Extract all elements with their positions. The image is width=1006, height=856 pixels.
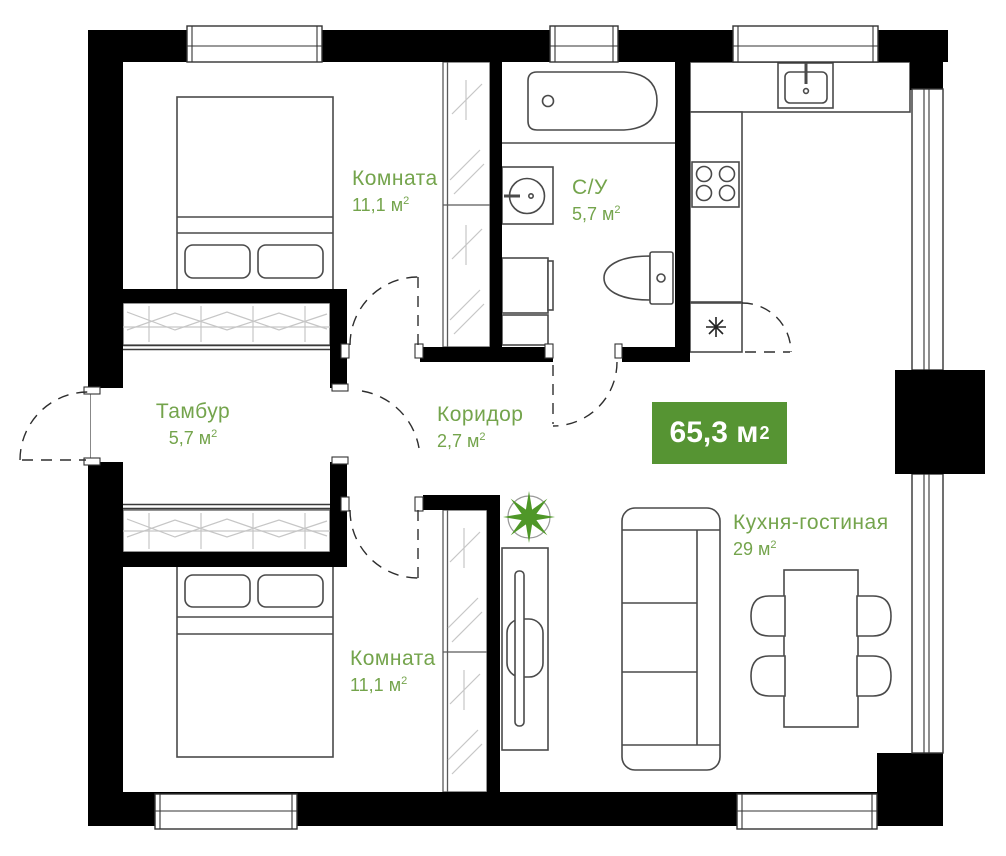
hall-closet-bottom bbox=[123, 505, 330, 553]
room-label-koridor: Коридор 2,7 м2 bbox=[437, 404, 523, 450]
wall-right-bottom-corner bbox=[877, 753, 943, 793]
snowflake-icon bbox=[706, 317, 726, 337]
plant-icon bbox=[503, 491, 555, 543]
wardrobe-top-room bbox=[443, 62, 490, 347]
dining-table bbox=[784, 570, 858, 727]
room-label-kitchen: Кухня-гостиная 29 м2 bbox=[733, 512, 889, 558]
room-label-bottom: Комната 11,1 м2 bbox=[350, 648, 436, 694]
chair bbox=[751, 596, 785, 636]
stove bbox=[692, 162, 739, 207]
door-swing-kitchen bbox=[742, 303, 791, 352]
washing-machine bbox=[502, 258, 553, 345]
wall-closet-right-top bbox=[330, 289, 347, 388]
floor-plan: Комната 11,1 м2 Тамбур 5,7 м2 Коридор 2,… bbox=[0, 0, 1006, 856]
toilet bbox=[604, 252, 673, 304]
room-label-tambur: Тамбур 5,7 м2 bbox=[155, 401, 231, 447]
wall-right-top-corner bbox=[910, 62, 943, 90]
wall-closet2-bottom bbox=[123, 552, 330, 567]
door-swing-hall bbox=[362, 391, 419, 448]
wall-room1-bottom bbox=[123, 289, 347, 303]
entrance-opening bbox=[84, 387, 123, 465]
chair bbox=[857, 596, 891, 636]
window bbox=[733, 26, 878, 62]
bed-bottom-room bbox=[177, 566, 333, 757]
tv-stand bbox=[502, 548, 548, 750]
chair bbox=[857, 656, 891, 696]
wall-bathroom-right bbox=[675, 62, 690, 362]
room-label-top: Комната 11,1 м2 bbox=[352, 168, 438, 214]
window bbox=[912, 89, 943, 370]
wall-room2-top bbox=[423, 495, 500, 510]
window bbox=[155, 794, 297, 829]
sofa bbox=[622, 508, 720, 770]
kitchen-sink bbox=[778, 63, 833, 108]
bed-top-room bbox=[177, 97, 333, 290]
bathroom-sink bbox=[502, 167, 553, 224]
total-area-badge: 65,3 м2 bbox=[652, 402, 787, 464]
room-label-su: С/У 5,7 м2 bbox=[572, 177, 621, 223]
window bbox=[737, 794, 877, 829]
door-swing-bottom-room bbox=[350, 510, 418, 578]
door-swing-entrance bbox=[20, 392, 88, 460]
wall-closet-right-bottom bbox=[330, 462, 347, 567]
chair bbox=[751, 656, 785, 696]
window bbox=[550, 26, 618, 62]
door-swing-bathroom bbox=[553, 362, 617, 426]
wall-corridor-top-left bbox=[420, 347, 553, 362]
wardrobe-bottom-room bbox=[443, 510, 487, 792]
bathtub bbox=[502, 72, 675, 143]
wall-pier-right bbox=[895, 370, 985, 474]
window bbox=[187, 26, 322, 62]
fridge bbox=[690, 303, 742, 352]
window bbox=[912, 474, 943, 753]
hall-closet-top bbox=[123, 303, 330, 350]
door-swing-top-room bbox=[350, 277, 418, 345]
wall-bathroom-left bbox=[490, 62, 502, 347]
wall-wardrobe2-right bbox=[487, 495, 500, 792]
